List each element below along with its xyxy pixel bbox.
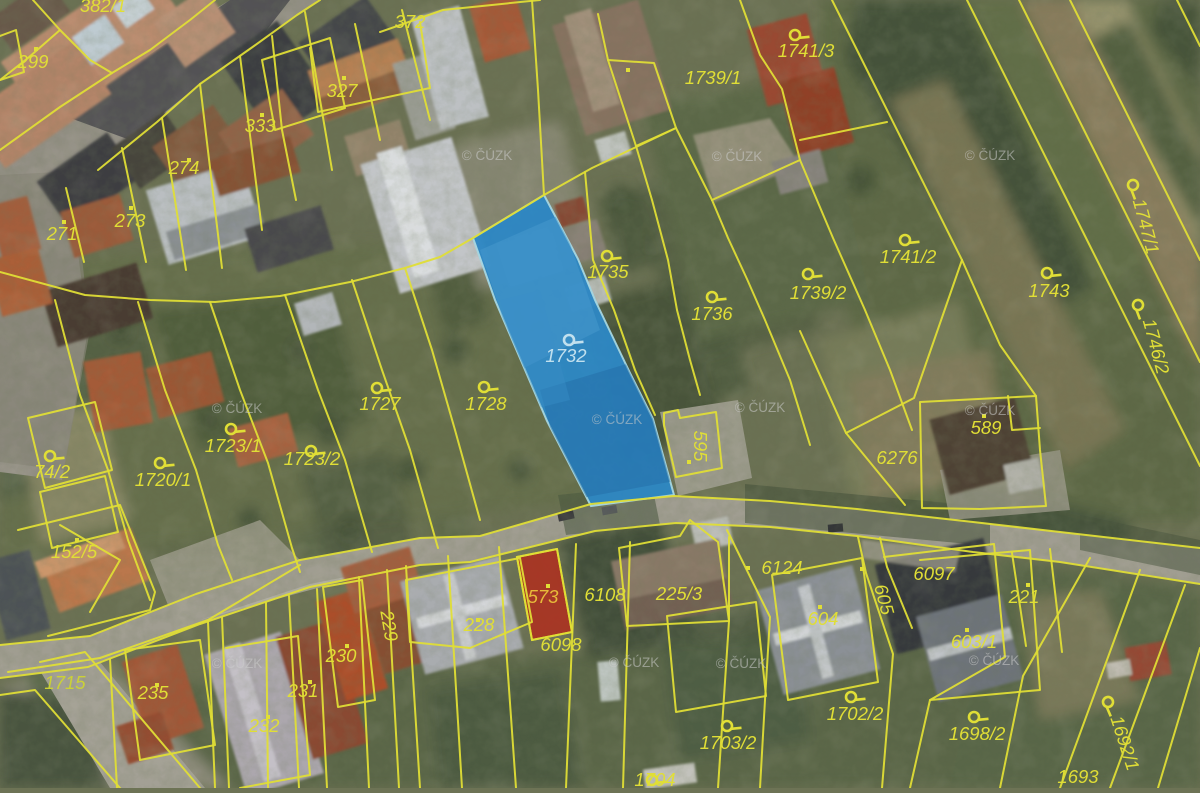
svg-text:© ČÚZK: © ČÚZK [735,400,785,415]
svg-text:© ČÚZK: © ČÚZK [609,655,659,670]
svg-text:© ČÚZK: © ČÚZK [712,149,762,164]
svg-text:© ČÚZK: © ČÚZK [969,653,1019,668]
svg-text:© ČÚZK: © ČÚZK [592,412,642,427]
svg-text:© ČÚZK: © ČÚZK [716,656,766,671]
svg-text:© ČÚZK: © ČÚZK [965,148,1015,163]
svg-text:© ČÚZK: © ČÚZK [212,656,262,671]
svg-text:© ČÚZK: © ČÚZK [965,403,1015,418]
svg-text:© ČÚZK: © ČÚZK [462,148,512,163]
svg-text:© ČÚZK: © ČÚZK [212,401,262,416]
